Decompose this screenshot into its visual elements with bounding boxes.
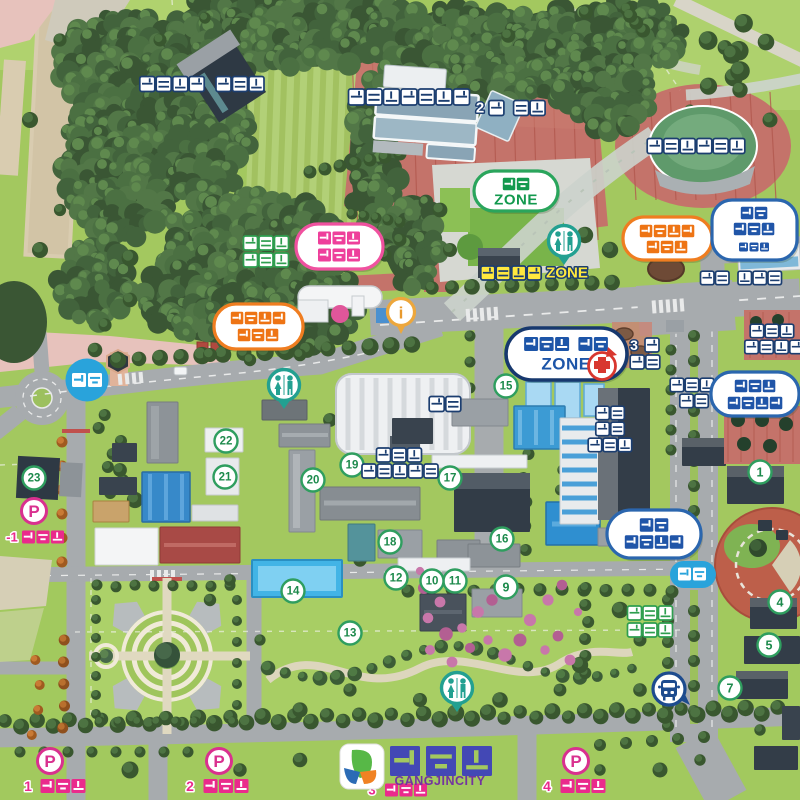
svg-text:19: 19	[346, 460, 359, 472]
svg-text:10: 10	[426, 576, 439, 588]
svg-text:ZONE: ZONE	[546, 265, 588, 282]
svg-text:4: 4	[543, 778, 551, 794]
svg-text:P: P	[44, 752, 55, 771]
svg-text:P: P	[213, 752, 224, 771]
svg-text:P: P	[570, 752, 581, 771]
svg-text:20: 20	[307, 475, 320, 487]
svg-text:17: 17	[444, 473, 457, 485]
svg-text:14: 14	[287, 586, 300, 598]
svg-text:-1: -1	[6, 530, 18, 545]
svg-text:3: 3	[630, 337, 638, 353]
svg-text:ZONE: ZONE	[494, 192, 538, 209]
svg-text:13: 13	[344, 628, 357, 640]
svg-text:1: 1	[757, 466, 764, 480]
svg-text:1: 1	[24, 778, 32, 794]
svg-text:i: i	[399, 304, 404, 323]
svg-text:22: 22	[220, 436, 233, 448]
svg-text:ZONE: ZONE	[541, 355, 590, 374]
svg-text:18: 18	[384, 537, 397, 549]
svg-text:4: 4	[777, 596, 784, 610]
svg-text:GANGJINCITY: GANGJINCITY	[395, 774, 486, 788]
svg-text:2: 2	[476, 100, 484, 117]
svg-text:7: 7	[727, 682, 734, 696]
svg-text:11: 11	[449, 576, 462, 588]
svg-text:P: P	[28, 502, 39, 521]
svg-text:21: 21	[219, 472, 232, 484]
svg-text:23: 23	[28, 473, 41, 485]
svg-text:15: 15	[500, 381, 513, 393]
svg-text:12: 12	[390, 573, 403, 585]
svg-text:9: 9	[503, 581, 510, 595]
svg-text:5: 5	[766, 639, 773, 653]
svg-text:2: 2	[186, 778, 194, 794]
svg-text:16: 16	[496, 534, 509, 546]
